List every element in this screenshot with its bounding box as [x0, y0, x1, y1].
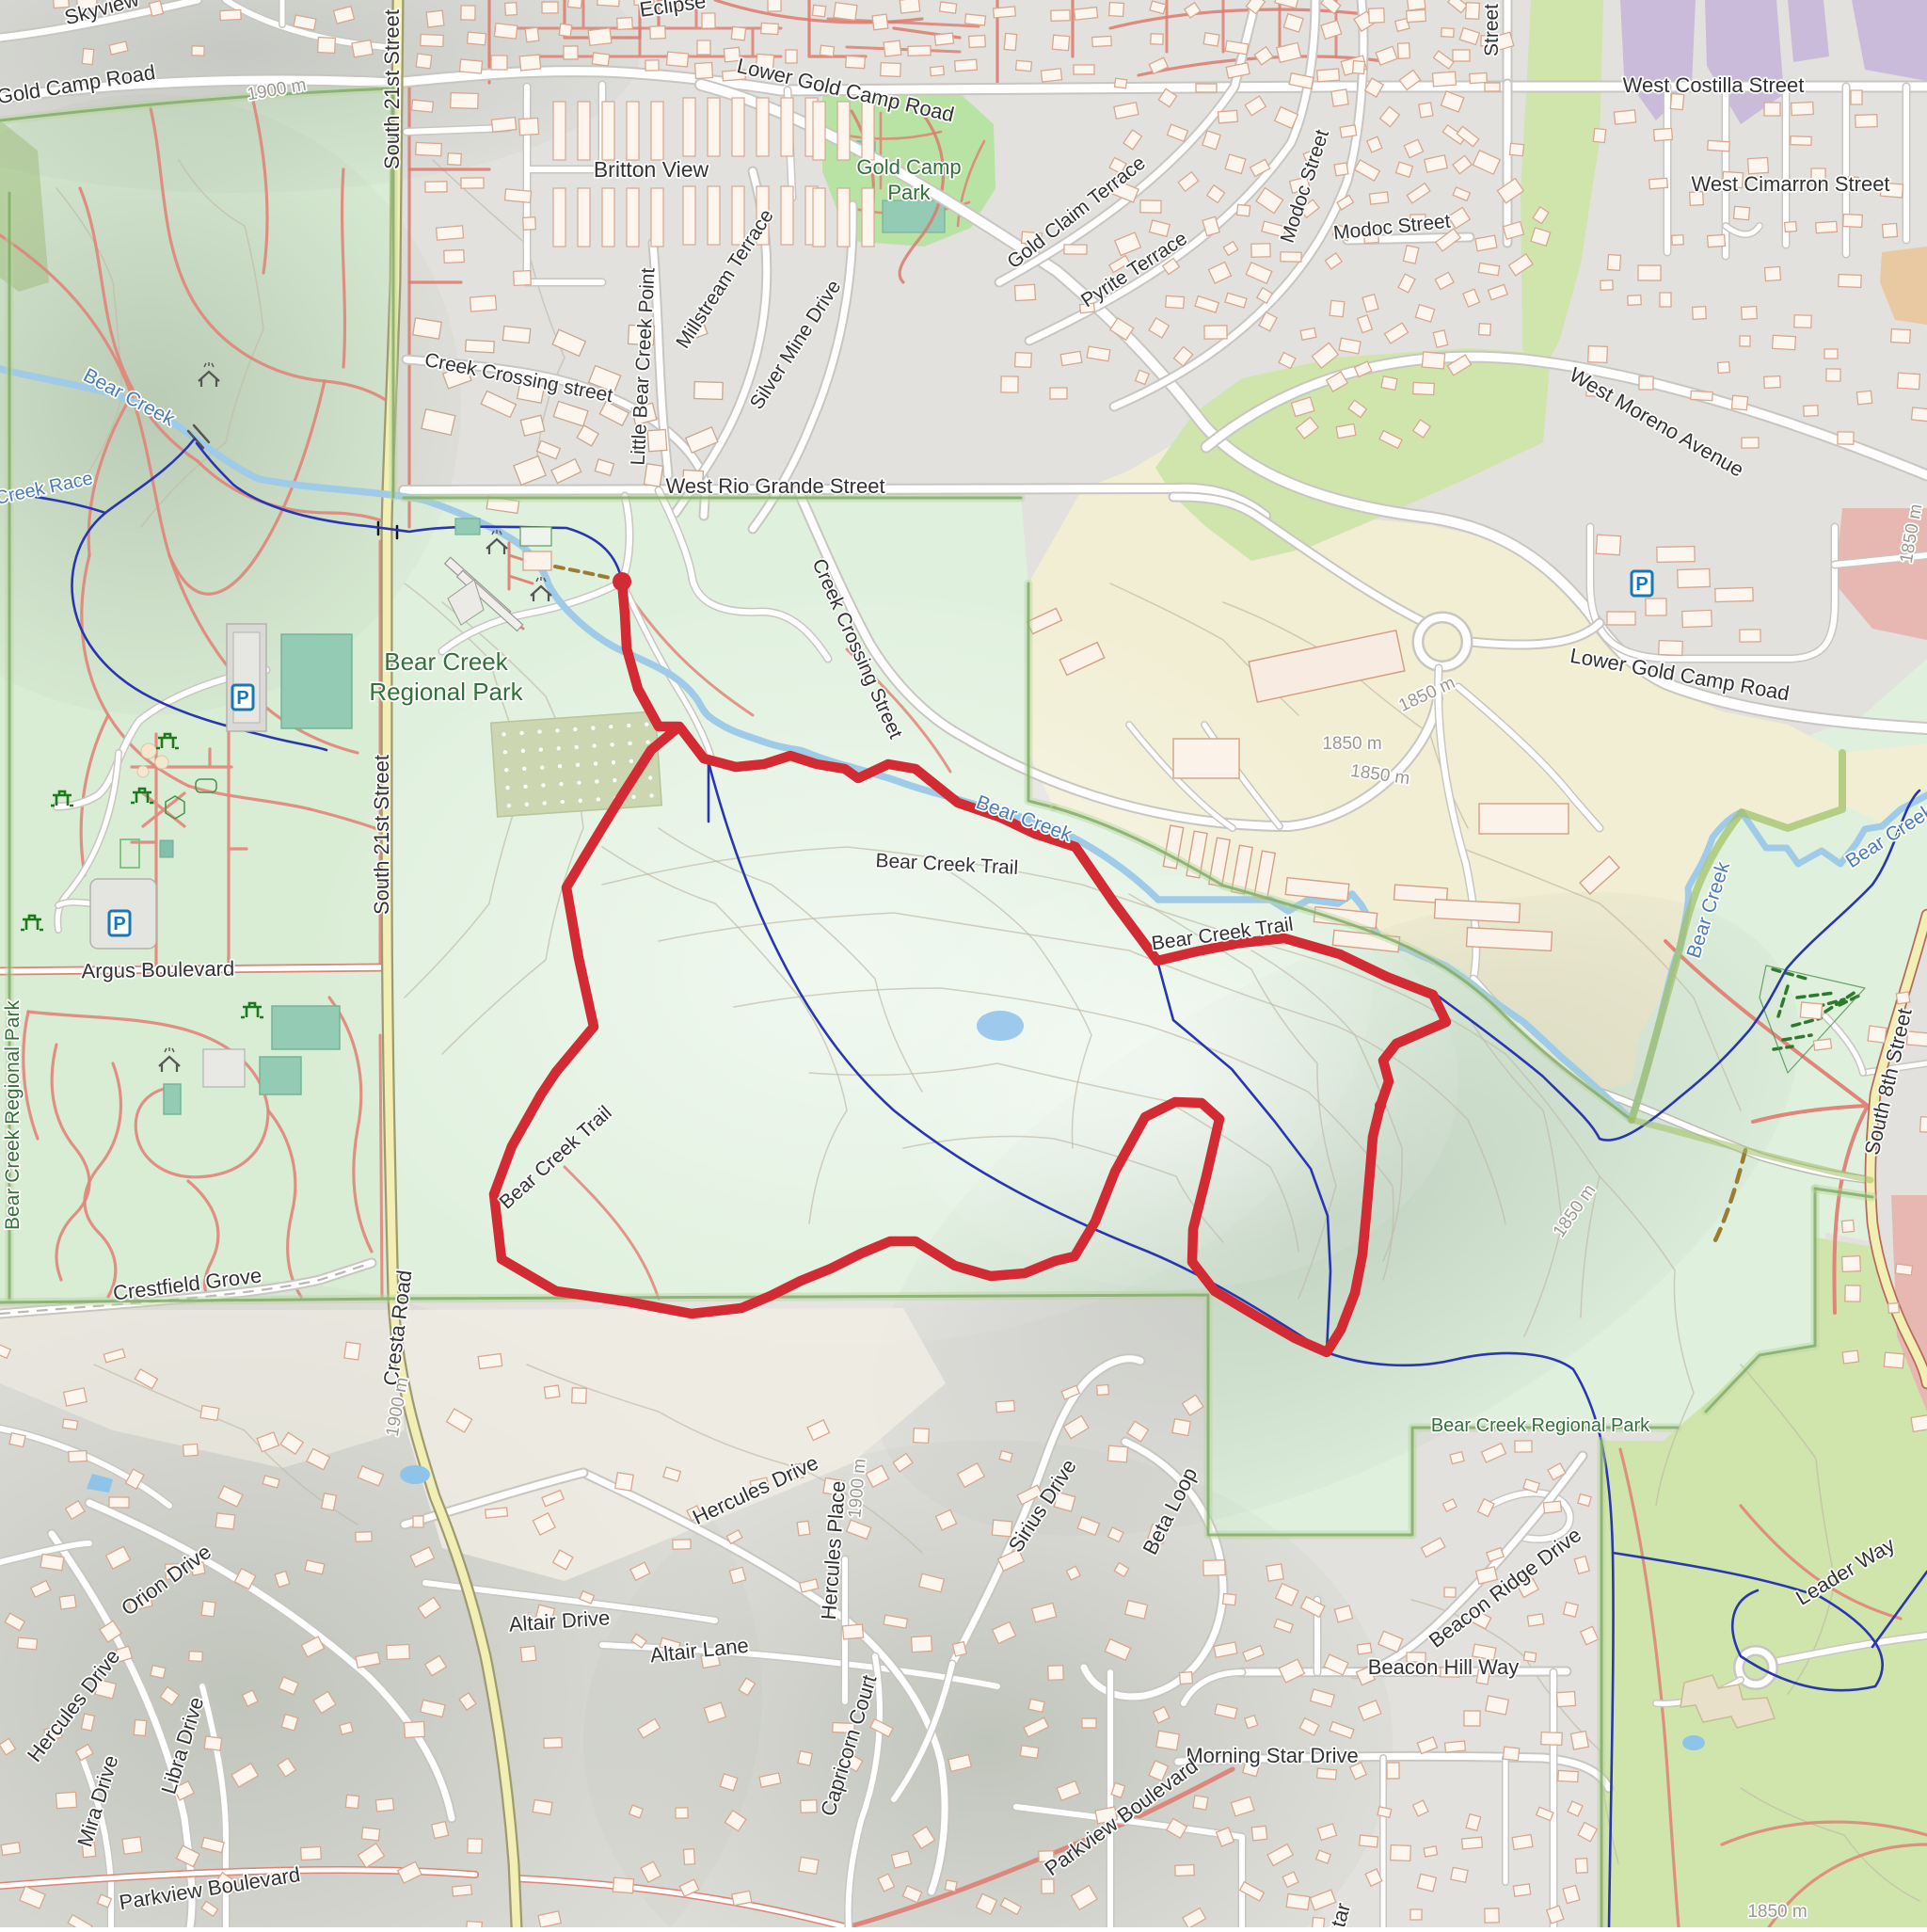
svg-text:Gold Camp: Gold Camp — [856, 155, 961, 179]
svg-text:1850 m: 1850 m — [1322, 734, 1381, 754]
svg-text:West Cimarron Street: West Cimarron Street — [1691, 172, 1889, 196]
svg-text:Beacon Hill Way: Beacon Hill Way — [1368, 1655, 1520, 1679]
svg-text:P: P — [113, 914, 125, 934]
svg-text:Morning Star Drive: Morning Star Drive — [1186, 1744, 1358, 1767]
svg-text:P: P — [236, 688, 248, 709]
svg-text:Bear Creek Regional Park: Bear Creek Regional Park — [2, 1000, 24, 1230]
svg-text:South 21st Street: South 21st Street — [380, 9, 404, 169]
svg-text:Bear Creek: Bear Creek — [384, 647, 508, 676]
svg-text:Regional Park: Regional Park — [369, 678, 523, 706]
svg-text:West Rio Grande Street: West Rio Grande Street — [665, 474, 884, 498]
svg-text:South 21st Street: South 21st Street — [370, 755, 393, 915]
svg-text:Britton View: Britton View — [594, 157, 709, 182]
svg-text:Bear Creek Regional Park: Bear Creek Regional Park — [1431, 1415, 1650, 1436]
svg-text:Argus Boulevard: Argus Boulevard — [81, 957, 234, 983]
svg-text:West Costilla Street: West Costilla Street — [1623, 73, 1805, 97]
svg-text:Street: Street — [1481, 4, 1503, 56]
svg-text:1850 m: 1850 m — [1747, 1902, 1807, 1922]
svg-text:P: P — [1635, 574, 1648, 595]
svg-text:Park: Park — [887, 181, 931, 204]
